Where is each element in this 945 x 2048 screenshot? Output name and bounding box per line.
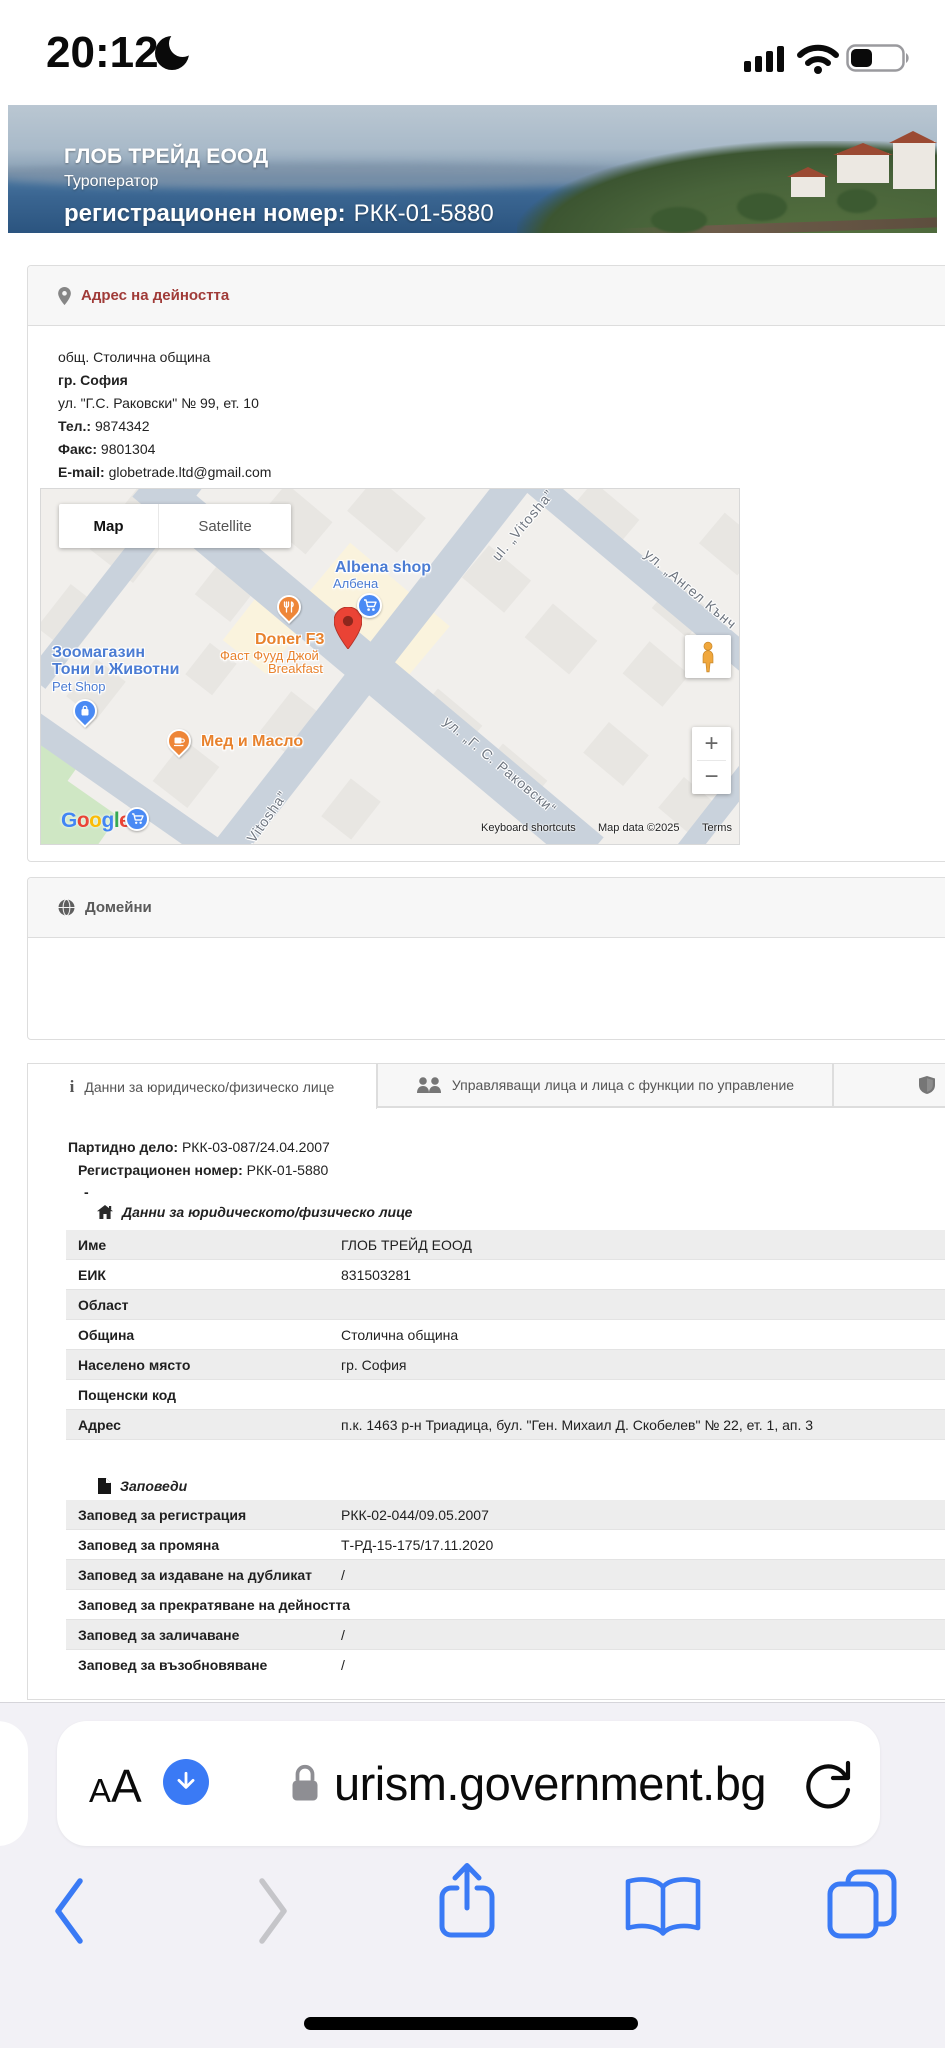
tab-insurance[interactable]: Застрах	[833, 1063, 945, 1107]
map-block	[699, 513, 740, 576]
address-phone: Тел.: 9874342	[58, 415, 271, 438]
forward-button[interactable]	[252, 1876, 292, 1946]
map-block	[525, 604, 598, 675]
row-value: п.к. 1463 р-н Триадица, бул. "Ген. Михаи…	[341, 1417, 813, 1433]
poi-zoo-line1-label[interactable]: Зоомагазин	[52, 644, 145, 662]
table-row: Заповед за издаване на дубликат/	[66, 1560, 945, 1590]
keyboard-shortcuts-link[interactable]: Keyboard shortcuts	[481, 822, 576, 834]
screen: 20:12 ГЛОБ ТРЕ	[0, 0, 945, 2048]
row-label: Заповед за заличаване	[66, 1627, 341, 1643]
terms-link[interactable]: Terms	[702, 822, 732, 834]
map-type-control: Map Satellite	[59, 504, 291, 548]
banner-house	[893, 141, 935, 189]
info-icon: i	[70, 1077, 75, 1097]
row-value: Т-РД-15-175/17.11.2020	[341, 1537, 493, 1553]
share-button[interactable]	[435, 1860, 499, 1942]
row-value: гр. София	[341, 1357, 407, 1373]
tab-entity-data-label: Данни за юридическо/физическо лице	[84, 1079, 334, 1095]
url-field[interactable]: urism.government.bg	[290, 1751, 790, 1815]
table-row: Адресп.к. 1463 р-н Триадица, бул. "Ген. …	[66, 1410, 945, 1440]
tab-entity-data[interactable]: i Данни за юридическо/физическо лице	[27, 1063, 377, 1109]
tab-managers[interactable]: Управляващи лица и лица с функции по упр…	[377, 1063, 833, 1107]
shopping-cart-poi-icon[interactable]	[357, 593, 382, 618]
file-number-line: Партидно дело: РКК-03-087/24.04.2007	[68, 1139, 330, 1155]
address-city: гр. София	[58, 369, 271, 392]
orders-table-header: Заповеди	[98, 1478, 187, 1494]
poi-zoo-sub-label: Pet Shop	[52, 679, 106, 694]
poi-doner-sub2-label: Breakfast	[268, 661, 323, 676]
bookmarks-button[interactable]	[622, 1875, 704, 1941]
address-card-header: Адрес на дейността	[28, 266, 945, 326]
row-value: ГЛОБ ТРЕЙД ЕООД	[341, 1237, 472, 1253]
address-fax: Факс: 9801304	[58, 438, 271, 461]
entity-table-header: Данни за юридическото/физическо лице	[97, 1204, 412, 1220]
home-indicator[interactable]	[304, 2017, 638, 2030]
row-value: /	[341, 1627, 345, 1643]
list-dash: -	[84, 1184, 89, 1200]
company-type: Туроператор	[64, 173, 494, 191]
download-arrow-icon	[173, 1769, 199, 1795]
domains-section-title: Домейни	[85, 899, 152, 916]
table-row: Пощенски код	[66, 1380, 945, 1410]
address-section-title: Адрес на дейността	[81, 287, 229, 304]
table-row: Заповед за прекратяване на дейността	[66, 1590, 945, 1620]
tabs-button[interactable]	[824, 1867, 900, 1939]
map-type-satellite-button[interactable]: Satellite	[159, 504, 291, 548]
table-row: Заповед за заличаване/	[66, 1620, 945, 1650]
map-type-map-button[interactable]: Map	[59, 504, 159, 548]
row-label: Заповед за регистрация	[66, 1507, 341, 1523]
table-row: ИмеГЛОБ ТРЕЙД ЕООД	[66, 1230, 945, 1260]
row-label: Община	[66, 1327, 341, 1343]
banner-bush	[651, 207, 707, 233]
reader-text-size-button[interactable]: AA	[89, 1759, 142, 1813]
address-municipality: общ. Столична община	[58, 346, 271, 369]
row-label: Област	[66, 1297, 341, 1313]
row-label: Пощенски код	[66, 1387, 341, 1403]
pegman-icon	[699, 641, 717, 673]
banner-text: ГЛОБ ТРЕЙД ЕООД Туроператор регистрацион…	[64, 145, 494, 228]
reload-button[interactable]	[802, 1757, 854, 1811]
registration-number-line: регистрационен номер:РКК-01-5880	[64, 200, 494, 228]
registration-number-value: РКК-01-5880	[354, 200, 494, 227]
google-map[interactable]: ul. „Vitosha” ул. „Ангел Кънч ул. „Г. С.…	[40, 488, 740, 845]
tab-managers-label: Управляващи лица и лица с функции по упр…	[452, 1077, 794, 1093]
registration-number-label: регистрационен номер:	[64, 200, 346, 227]
table-row: Заповед за възобновяване/	[66, 1650, 945, 1680]
zoom-out-button[interactable]: −	[692, 761, 731, 793]
map-pin-icon	[58, 287, 71, 305]
lock-icon	[290, 1763, 320, 1803]
row-value: 831503281	[341, 1267, 411, 1283]
banner-house	[837, 153, 889, 183]
banner-bush	[737, 193, 787, 221]
row-value: Столична община	[341, 1327, 458, 1343]
registration-number-line2: Регистрационен номер: РКК-01-5880	[78, 1162, 328, 1178]
banner-roof	[889, 131, 937, 143]
address-bar[interactable]: AA urism.government.bg	[57, 1721, 880, 1846]
globe-icon	[58, 899, 75, 916]
company-name: ГЛОБ ТРЕЙД ЕООД	[64, 145, 494, 169]
wifi-icon	[796, 42, 840, 74]
adjacent-tab-preview[interactable]	[0, 1721, 28, 1846]
table-row: Област	[66, 1290, 945, 1320]
status-time: 20:12	[46, 28, 159, 78]
google-logo[interactable]: Google	[61, 809, 130, 833]
entity-data-panel: Партидно дело: РКК-03-087/24.04.2007 Рег…	[27, 1107, 945, 1700]
location-marker-pin[interactable]	[334, 607, 362, 649]
focus-moon-icon	[155, 36, 189, 70]
signal-strength-icon	[744, 44, 788, 72]
map-block	[623, 641, 690, 707]
people-icon	[416, 1077, 442, 1093]
row-label: Заповед за прекратяване на дейността	[66, 1597, 341, 1613]
battery-icon	[846, 44, 914, 72]
table-row: Заповед за промянаТ-РД-15-175/17.11.2020	[66, 1530, 945, 1560]
poi-albena-shop-label[interactable]: Albena shop	[335, 559, 431, 577]
safari-bottom-bar: AA urism.government.bg	[0, 1702, 945, 2048]
domains-card: Домейни	[27, 877, 945, 1040]
poi-doner-f3-label[interactable]: Doner F3	[255, 631, 324, 649]
row-value: /	[341, 1657, 345, 1673]
address-block: общ. Столична община гр. София ул. "Г.С.…	[58, 346, 271, 484]
map-block	[347, 488, 426, 552]
status-bar: 20:12	[0, 0, 945, 92]
row-label: Населено място	[66, 1357, 341, 1373]
domains-card-header: Домейни	[28, 878, 945, 938]
table-row: ОбщинаСтолична община	[66, 1320, 945, 1350]
map-block	[321, 778, 380, 839]
back-button[interactable]	[50, 1876, 90, 1946]
map-zoom-control: + −	[692, 727, 731, 794]
zoom-in-button[interactable]: +	[692, 727, 731, 760]
map-block	[583, 722, 649, 786]
row-label: Име	[66, 1237, 341, 1253]
download-progress-button[interactable]	[163, 1759, 209, 1805]
poi-zoo-line2-label: Тони и Животни	[52, 661, 179, 679]
company-banner: ГЛОБ ТРЕЙД ЕООД Туроператор регистрацион…	[8, 105, 937, 233]
row-label: Заповед за възобновяване	[66, 1657, 341, 1673]
document-icon	[98, 1478, 111, 1494]
row-label: ЕИК	[66, 1267, 341, 1283]
banner-bush	[837, 189, 877, 213]
row-label: Заповед за издаване на дубликат	[66, 1567, 341, 1583]
shield-icon	[919, 1076, 935, 1094]
table-row: Заповед за регистрацияРКК-02-044/09.05.2…	[66, 1500, 945, 1530]
banner-house	[791, 175, 825, 197]
shopping-poi-over-logo-icon[interactable]	[125, 807, 149, 831]
street-view-pegman-button[interactable]	[685, 635, 731, 678]
poi-med-i-maslo-label[interactable]: Мед и Масло	[201, 733, 303, 751]
row-label: Адрес	[66, 1417, 341, 1433]
table-row: Населено мястогр. София	[66, 1350, 945, 1380]
row-label: Заповед за промяна	[66, 1537, 341, 1553]
url-text: urism.government.bg	[318, 1756, 766, 1811]
row-value: /	[341, 1567, 345, 1583]
table-row: ЕИК831503281	[66, 1260, 945, 1290]
address-street: ул. "Г.С. Раковски" № 99, ет. 10	[58, 392, 271, 415]
map-data-attribution: Map data ©2025	[598, 822, 680, 834]
poi-albena-sub-label: Албена	[333, 576, 378, 591]
address-email: E-mail: globetrade.ltd@gmail.com	[58, 461, 271, 484]
row-value: РКК-02-044/09.05.2007	[341, 1507, 489, 1523]
home-icon	[97, 1205, 113, 1219]
